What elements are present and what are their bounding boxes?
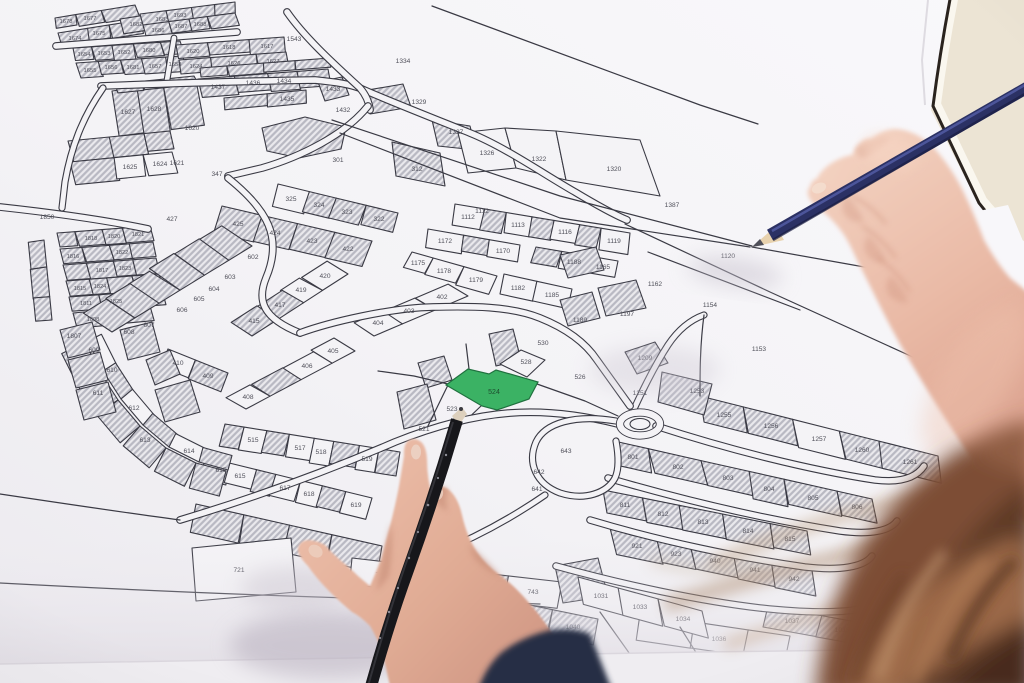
svg-text:519: 519 <box>361 456 372 463</box>
svg-text:1182: 1182 <box>511 285 526 292</box>
svg-text:1387: 1387 <box>665 202 680 209</box>
svg-text:1820: 1820 <box>108 234 120 240</box>
svg-text:602: 602 <box>247 254 258 261</box>
svg-text:1162: 1162 <box>648 281 663 288</box>
svg-text:802: 802 <box>672 464 683 471</box>
svg-text:1621: 1621 <box>170 160 185 167</box>
svg-text:1674: 1674 <box>69 36 83 42</box>
svg-text:322: 322 <box>373 216 384 223</box>
svg-text:1821: 1821 <box>132 232 144 238</box>
svg-text:425: 425 <box>232 221 243 228</box>
svg-text:1850: 1850 <box>40 214 55 221</box>
svg-text:1165: 1165 <box>596 264 611 271</box>
svg-text:1113: 1113 <box>511 222 525 229</box>
svg-text:1432: 1432 <box>336 107 351 114</box>
svg-text:1154: 1154 <box>703 302 718 309</box>
svg-text:607: 607 <box>143 322 154 329</box>
svg-text:1652: 1652 <box>118 50 131 56</box>
svg-text:523: 523 <box>446 406 457 413</box>
svg-text:642: 642 <box>533 469 544 476</box>
svg-text:1825: 1825 <box>110 299 122 305</box>
svg-text:1628: 1628 <box>147 106 162 113</box>
svg-text:424: 424 <box>269 230 280 237</box>
svg-text:611: 611 <box>93 390 104 397</box>
svg-text:1153: 1153 <box>752 346 767 353</box>
svg-text:1658: 1658 <box>169 62 182 68</box>
svg-text:1327: 1327 <box>449 129 464 136</box>
svg-text:811: 811 <box>620 502 631 509</box>
svg-text:410: 410 <box>172 360 183 367</box>
svg-text:1815: 1815 <box>74 286 86 292</box>
svg-text:1627: 1627 <box>121 109 136 116</box>
svg-text:406: 406 <box>301 363 312 370</box>
svg-text:526: 526 <box>574 374 585 381</box>
svg-text:1170: 1170 <box>496 248 511 255</box>
svg-text:1624: 1624 <box>190 64 204 70</box>
svg-text:1681: 1681 <box>127 65 140 71</box>
svg-text:423: 423 <box>306 238 317 245</box>
svg-text:1678: 1678 <box>60 19 73 25</box>
svg-text:1260: 1260 <box>855 447 870 454</box>
svg-text:427: 427 <box>166 216 177 223</box>
svg-text:612: 612 <box>128 405 139 412</box>
svg-text:618: 618 <box>303 491 314 498</box>
svg-text:1197: 1197 <box>620 311 635 318</box>
svg-text:1326: 1326 <box>480 150 495 157</box>
svg-text:417: 417 <box>274 302 285 309</box>
svg-text:524: 524 <box>488 389 500 396</box>
svg-text:1624: 1624 <box>153 161 168 168</box>
svg-text:419: 419 <box>295 287 306 294</box>
svg-text:803: 803 <box>722 475 733 482</box>
svg-text:1617: 1617 <box>261 44 274 50</box>
svg-text:1653: 1653 <box>98 51 111 57</box>
svg-text:1175: 1175 <box>411 260 426 267</box>
svg-text:617: 617 <box>279 485 290 492</box>
svg-text:1116: 1116 <box>558 229 572 236</box>
svg-text:1687: 1687 <box>175 24 188 30</box>
svg-text:1255: 1255 <box>717 412 732 419</box>
svg-text:813: 813 <box>697 519 708 526</box>
svg-text:1627: 1627 <box>267 59 280 65</box>
svg-text:1112: 1112 <box>461 214 475 221</box>
svg-text:1811: 1811 <box>80 301 92 307</box>
svg-text:814: 814 <box>742 528 753 535</box>
svg-text:1322: 1322 <box>532 156 547 163</box>
svg-text:1261: 1261 <box>903 459 918 466</box>
svg-text:1816: 1816 <box>67 254 79 260</box>
svg-text:1437: 1437 <box>211 84 226 91</box>
svg-text:1618: 1618 <box>223 45 236 51</box>
svg-text:1189: 1189 <box>573 317 588 324</box>
svg-text:1656: 1656 <box>105 65 118 71</box>
svg-text:613: 613 <box>139 437 150 444</box>
svg-text:1620: 1620 <box>187 49 200 55</box>
svg-text:528: 528 <box>520 359 531 366</box>
svg-text:1688: 1688 <box>194 22 207 28</box>
svg-text:609: 609 <box>88 347 99 354</box>
svg-text:521: 521 <box>418 426 429 433</box>
svg-text:402: 402 <box>436 294 447 301</box>
svg-text:1626: 1626 <box>228 61 241 67</box>
svg-text:518: 518 <box>315 449 326 456</box>
svg-text:324: 324 <box>313 202 324 209</box>
svg-text:1675: 1675 <box>93 31 106 37</box>
svg-text:604: 604 <box>208 286 219 293</box>
svg-text:643: 643 <box>560 448 571 455</box>
svg-text:347: 347 <box>211 171 222 178</box>
svg-text:1824: 1824 <box>94 284 106 290</box>
svg-text:1257: 1257 <box>812 436 827 443</box>
svg-text:801: 801 <box>627 454 638 461</box>
svg-text:1680: 1680 <box>143 48 156 54</box>
svg-text:1625: 1625 <box>123 164 138 171</box>
svg-text:1818: 1818 <box>85 236 97 242</box>
svg-text:515: 515 <box>247 437 258 444</box>
svg-text:1433: 1433 <box>326 86 341 93</box>
svg-text:1822: 1822 <box>116 250 128 256</box>
svg-text:1435: 1435 <box>280 96 295 103</box>
svg-text:530: 530 <box>537 340 548 347</box>
svg-text:605: 605 <box>193 296 204 303</box>
svg-text:403: 403 <box>403 308 414 315</box>
svg-text:1808: 1808 <box>87 317 99 323</box>
svg-text:1807: 1807 <box>67 333 82 340</box>
svg-text:641: 641 <box>531 486 542 493</box>
svg-text:408: 408 <box>242 394 253 401</box>
svg-text:301: 301 <box>332 157 343 164</box>
svg-text:1682: 1682 <box>130 22 143 28</box>
svg-text:610: 610 <box>106 367 117 374</box>
svg-text:606: 606 <box>176 307 187 314</box>
svg-text:1112: 1112 <box>475 208 489 215</box>
svg-text:1677: 1677 <box>84 16 97 22</box>
svg-text:1172: 1172 <box>438 238 453 245</box>
svg-text:603: 603 <box>224 274 235 281</box>
svg-text:1119: 1119 <box>607 238 621 245</box>
svg-text:805: 805 <box>807 495 818 502</box>
svg-text:1185: 1185 <box>545 292 560 299</box>
svg-text:1188: 1188 <box>567 259 582 266</box>
svg-text:1823: 1823 <box>119 266 131 272</box>
svg-text:1320: 1320 <box>607 166 622 173</box>
svg-text:1620: 1620 <box>185 125 200 132</box>
svg-text:1693: 1693 <box>174 13 187 19</box>
svg-text:422: 422 <box>342 246 353 253</box>
svg-text:615: 615 <box>234 473 245 480</box>
svg-text:1817: 1817 <box>96 268 108 274</box>
svg-text:409: 409 <box>202 373 213 380</box>
svg-text:1657: 1657 <box>149 64 162 70</box>
svg-text:404: 404 <box>372 320 383 327</box>
svg-text:312: 312 <box>411 166 422 173</box>
svg-text:1329: 1329 <box>412 99 427 106</box>
svg-text:1655: 1655 <box>84 68 97 74</box>
svg-text:614: 614 <box>183 448 194 455</box>
svg-text:517: 517 <box>294 445 305 452</box>
svg-text:1654: 1654 <box>78 52 92 58</box>
svg-text:323: 323 <box>341 209 352 216</box>
svg-text:420: 420 <box>319 273 330 280</box>
svg-text:812: 812 <box>657 511 668 518</box>
svg-text:1179: 1179 <box>469 277 484 284</box>
svg-text:1436: 1436 <box>246 80 261 87</box>
svg-text:415: 415 <box>248 318 259 325</box>
svg-text:619: 619 <box>350 502 361 509</box>
svg-text:1686: 1686 <box>152 28 165 34</box>
svg-text:1178: 1178 <box>437 268 452 275</box>
svg-text:608: 608 <box>123 329 134 336</box>
svg-text:1683: 1683 <box>156 17 169 23</box>
svg-text:1434: 1434 <box>277 78 292 85</box>
svg-text:1334: 1334 <box>396 58 411 65</box>
svg-text:615: 615 <box>215 467 226 474</box>
svg-text:1543: 1543 <box>287 36 302 43</box>
svg-text:325: 325 <box>285 196 296 203</box>
svg-text:1256: 1256 <box>764 423 779 430</box>
svg-text:804: 804 <box>763 486 774 493</box>
svg-text:405: 405 <box>327 348 338 355</box>
